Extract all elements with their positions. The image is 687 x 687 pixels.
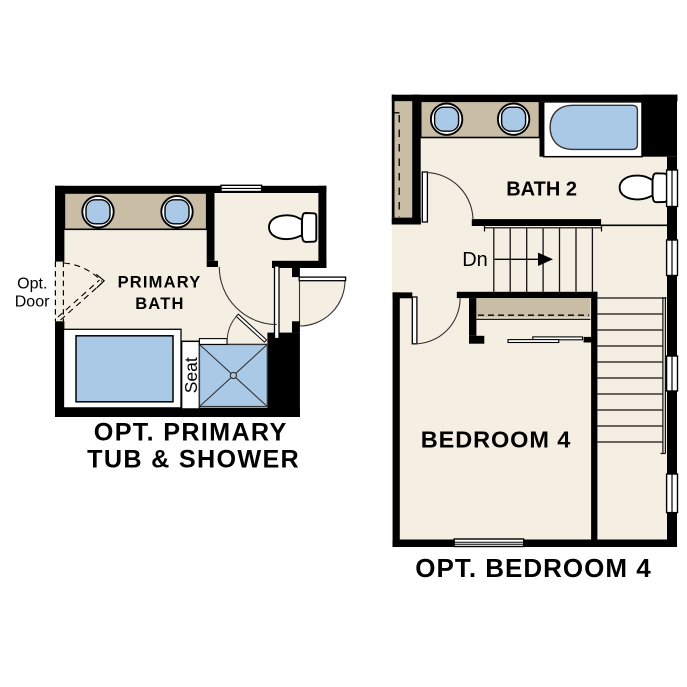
svg-text:Seat: Seat (181, 357, 201, 393)
svg-text:Opt.: Opt. (17, 275, 47, 292)
svg-text:OPT. BEDROOM 4: OPT. BEDROOM 4 (415, 553, 651, 583)
svg-text:Door: Door (15, 293, 50, 310)
svg-text:BATH: BATH (135, 295, 184, 313)
svg-text:BATH 2: BATH 2 (506, 179, 577, 201)
svg-text:BEDROOM 4: BEDROOM 4 (421, 427, 571, 453)
svg-text:PRIMARY: PRIMARY (118, 273, 202, 291)
svg-text:OPT. PRIMARY: OPT. PRIMARY (94, 419, 288, 447)
svg-text:TUB & SHOWER: TUB & SHOWER (87, 445, 300, 473)
svg-text:Dn: Dn (462, 249, 488, 271)
